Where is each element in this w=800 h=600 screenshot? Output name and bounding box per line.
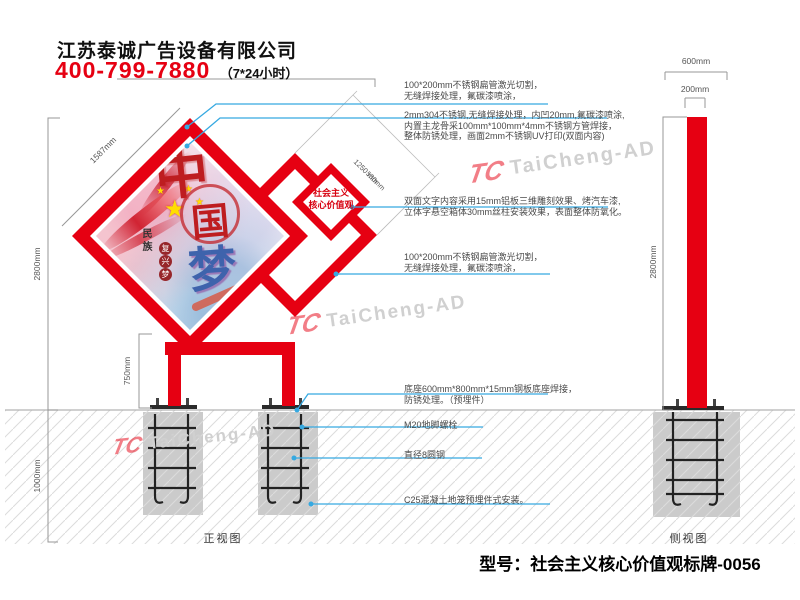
taicheng-logo-icon: TC xyxy=(110,431,145,461)
front-view-label: 正视图 xyxy=(193,530,253,546)
taicheng-logo-icon: TC xyxy=(284,307,322,342)
small-sign-line2: 核心价值观 xyxy=(296,199,366,211)
cross-beam xyxy=(165,342,295,355)
annotation-line: 2mm304不锈钢,无缝焊接处理，内凹20mm,氟碳漆喷涂, xyxy=(404,110,625,121)
base-plate-right xyxy=(262,405,309,409)
annotation-lettering: 双面文字内容采用15mm铝板三维雕刻效果、烤汽车漆, 立体字悬空箱体30mm丝柱… xyxy=(404,196,627,217)
dim-front-2800 xyxy=(48,118,60,410)
annotation-panel-body: 2mm304不锈钢,无缝焊接处理，内凹20mm,氟碳漆喷涂, 内置主龙骨采100… xyxy=(404,110,625,142)
dim-label-side-column: 200mm xyxy=(670,84,720,94)
annotation-line: 无缝焊接处理，氟碳漆喷涂， xyxy=(404,91,543,102)
watermark: TC TaiCheng-AD xyxy=(111,417,278,460)
annotation-line: 内置主龙骨采100mm*100mm*4mm不锈钢方管焊接， xyxy=(404,121,625,132)
technical-drawing-page: ★ ★ ★ ★ 中 国 梦 民族 复 兴 梦 xyxy=(0,0,800,600)
taicheng-logo-icon: TC xyxy=(466,154,506,191)
watermark-text: TaiCheng-AD xyxy=(509,137,658,180)
dim-label-side-height: 2800mm xyxy=(648,237,658,287)
contact-row: 400-799-7880 （7*24小时） xyxy=(55,57,298,84)
dim-label-leg: 750mm xyxy=(122,346,132,396)
side-foundation xyxy=(653,412,740,517)
service-hours: （7*24小时） xyxy=(220,66,299,81)
annotation-anchor-bolt: M20地脚螺栓 xyxy=(404,420,458,431)
annotation-rebar: 直径8圆钢 xyxy=(404,450,445,461)
annotation-line: 防锈处理。（预埋件） xyxy=(404,395,577,406)
seal-char: 复 xyxy=(159,242,172,255)
calligraphy-char-meng: 梦 xyxy=(186,228,239,301)
left-leg xyxy=(168,355,181,406)
right-leg xyxy=(282,355,295,406)
annotation-line: M20地脚螺栓 xyxy=(404,420,458,431)
annotation-base-plate: 底座600mm*800mm*15mm钢板底座焊接， 防锈处理。（预埋件） xyxy=(404,384,577,405)
annotation-line: C25混凝土地笼预埋件式安装。 xyxy=(404,495,529,506)
annotation-line: 100*200mm不锈钢扁管激光切割， xyxy=(404,80,543,91)
dim-label-panel-edge: 1587mm xyxy=(82,129,124,171)
ground-hatch xyxy=(5,410,795,544)
watermark: TC TaiCheng-AD xyxy=(467,133,658,190)
vertical-caption: 民族 xyxy=(138,228,153,254)
annotation-pipe-mid: 100*200mm不锈钢扁管激光切割， 无缝焊接处理，氟碳漆喷涂， xyxy=(404,252,543,273)
annotation-line: 双面文字内容采用15mm铝板三维雕刻效果、烤汽车漆, xyxy=(404,196,627,207)
annotation-line: 无缝焊接处理，氟碳漆喷涂， xyxy=(404,263,543,274)
dim-label-underground: 1000mm xyxy=(32,451,42,501)
watermark-text: TaiCheng-AD xyxy=(148,420,278,453)
side-view-label: 侧视图 xyxy=(659,530,719,546)
dim-front-1000 xyxy=(48,410,58,542)
small-sign-line1: 社会主义 xyxy=(296,187,366,199)
ground-section xyxy=(5,410,795,544)
dim-leg-750 xyxy=(139,334,152,408)
dim-label-front-height: 2800mm xyxy=(32,239,42,289)
dim-label-side-base: 600mm xyxy=(671,56,721,66)
watermark-text: TaiCheng-AD xyxy=(325,291,468,332)
annotation-line: 直径8圆钢 xyxy=(404,450,445,461)
annotation-line: 底座600mm*800mm*15mm钢板底座焊接， xyxy=(404,384,577,395)
base-plate-left xyxy=(150,405,197,409)
annotation-line: 立体字悬空箱体30mm丝柱安装效果，表面整体防氧化。 xyxy=(404,207,627,218)
annotation-pipe-top: 100*200mm不锈钢扁管激光切割， 无缝焊接处理，氟碳漆喷涂， xyxy=(404,80,543,101)
annotation-line: 100*200mm不锈钢扁管激光切割， xyxy=(404,252,543,263)
dim-side-600 xyxy=(665,72,727,80)
model-number: 型号：社会主义核心价值观标牌-0056 xyxy=(455,550,785,575)
small-sign-text: 社会主义 核心价值观 xyxy=(296,187,366,211)
dim-side-2800 xyxy=(663,117,687,410)
seal-char: 梦 xyxy=(159,268,172,281)
annotation-concrete: C25混凝土地笼预埋件式安装。 xyxy=(404,495,529,506)
side-column xyxy=(687,117,707,408)
seal-char: 兴 xyxy=(159,255,172,268)
dim-side-200 xyxy=(685,98,705,108)
phone-number: 400-799-7880 xyxy=(55,57,210,83)
annotation-line: 整体防锈处理，画面2mm不锈钢UV打印(双面内容) xyxy=(404,131,625,142)
watermark: TC TaiCheng-AD xyxy=(285,288,469,342)
china-dream-artwork: ★ ★ ★ ★ 中 国 梦 民族 复 兴 梦 xyxy=(96,142,284,330)
rebar-cage-side xyxy=(666,412,724,505)
base-plate-side xyxy=(662,406,724,410)
